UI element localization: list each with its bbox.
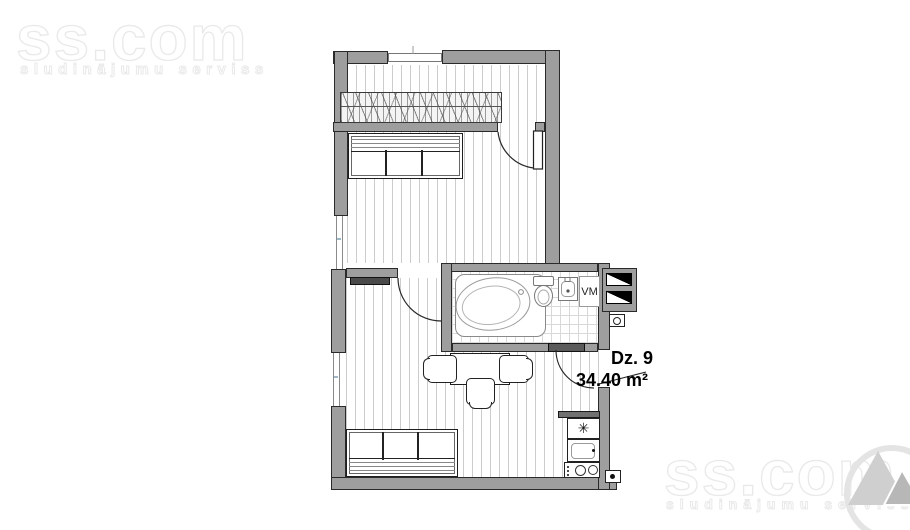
floor-plan-image: ss.com sludinājumu serviss ss.com sludin…	[0, 0, 910, 530]
washing-machine-label: VM	[581, 286, 598, 298]
bathtub	[453, 273, 546, 336]
toilet	[534, 277, 554, 307]
fixtures-and-doors-overlay	[0, 0, 910, 530]
door-leaf	[534, 131, 543, 169]
washing-machine-box: VM	[579, 276, 600, 307]
door-swing-living-room	[398, 278, 441, 321]
door-swing-bedroom	[498, 132, 534, 168]
unit-number-label: Dz. 9	[611, 349, 653, 367]
unit-area-label: 34.40 m²	[576, 371, 648, 389]
washbasin	[559, 278, 578, 301]
